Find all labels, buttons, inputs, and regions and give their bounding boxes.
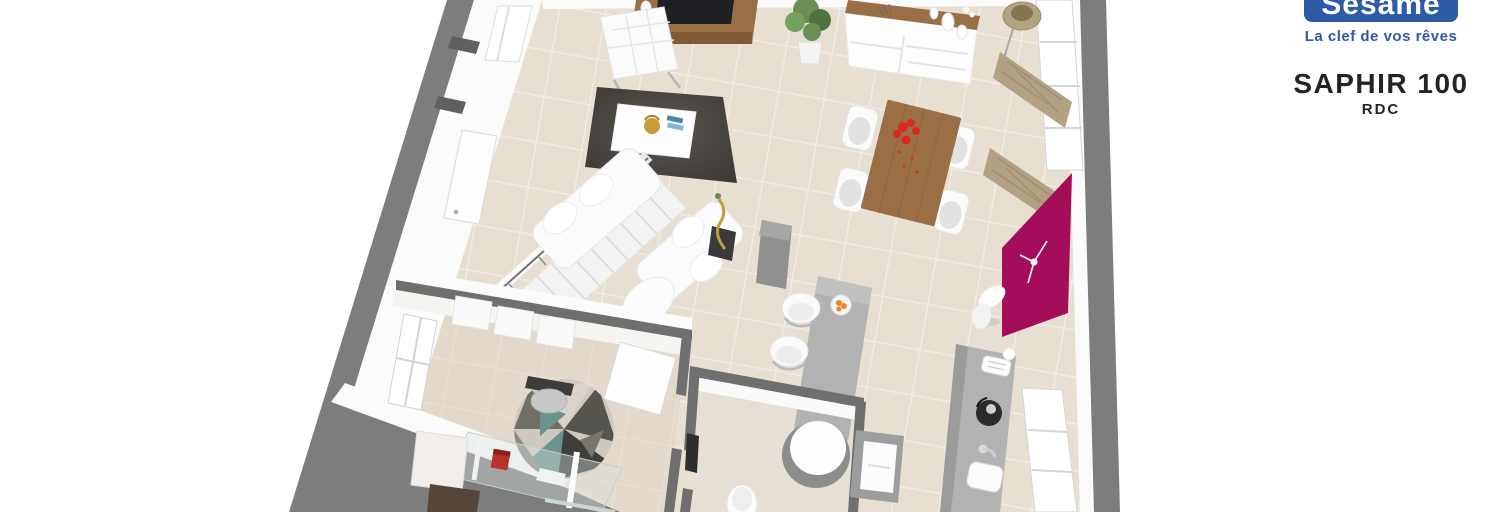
flower <box>907 119 915 127</box>
red-desk-item <box>491 449 511 471</box>
bar-stool <box>782 293 820 326</box>
vase <box>957 25 967 39</box>
food <box>837 307 842 312</box>
plan-title: SAPHIR 100 <box>1281 68 1481 100</box>
stool-cushion-inner <box>776 346 802 364</box>
bar-stool <box>770 336 808 369</box>
branding-panel: Sésame La clef de vos rêves SAPHIR 100 R… <box>1281 0 1481 118</box>
flower <box>898 122 908 132</box>
white-flowers <box>970 13 975 18</box>
office-chair-seat <box>531 389 567 413</box>
kettle-lid <box>986 404 996 414</box>
flower <box>902 136 911 145</box>
lounge-chair-body <box>600 7 678 79</box>
petal <box>915 170 918 173</box>
foliage <box>785 12 805 32</box>
stool-cushion-inner <box>788 303 814 321</box>
white-flowers <box>963 7 969 13</box>
round-shower <box>790 421 846 475</box>
sesame-logo: Sésame <box>1304 0 1458 22</box>
entry-door-handle <box>454 210 458 214</box>
floorplan-3d-render <box>0 0 1504 512</box>
logo-text: Sésame <box>1321 0 1440 21</box>
petal <box>910 156 913 159</box>
petal <box>902 164 905 167</box>
flower <box>912 127 920 135</box>
brand-tagline: La clef de vos rêves <box>1281 28 1481 45</box>
petal <box>897 150 900 153</box>
vase <box>930 7 938 19</box>
wall-shelf <box>452 296 492 330</box>
white-cabinet <box>411 431 468 492</box>
bathroom-mirror <box>685 433 699 473</box>
foliage <box>803 23 821 41</box>
sink-unit <box>850 430 904 503</box>
food <box>836 300 842 306</box>
cup <box>1003 348 1015 360</box>
wall-shelf <box>536 315 576 349</box>
pedestal <box>756 220 792 289</box>
floorplan-page: Sésame La clef de vos rêves SAPHIR 100 R… <box>0 0 1504 512</box>
gold-handbag <box>644 118 660 134</box>
floor-lamp-inner <box>1011 5 1033 21</box>
food <box>841 303 847 309</box>
plant-pot <box>798 42 822 64</box>
flower <box>893 130 901 138</box>
sculpture-leaf <box>715 193 721 199</box>
wall-shelf <box>494 306 534 340</box>
toilet-seat <box>732 487 752 511</box>
floor-label: RDC <box>1281 101 1481 118</box>
vase <box>942 13 954 31</box>
